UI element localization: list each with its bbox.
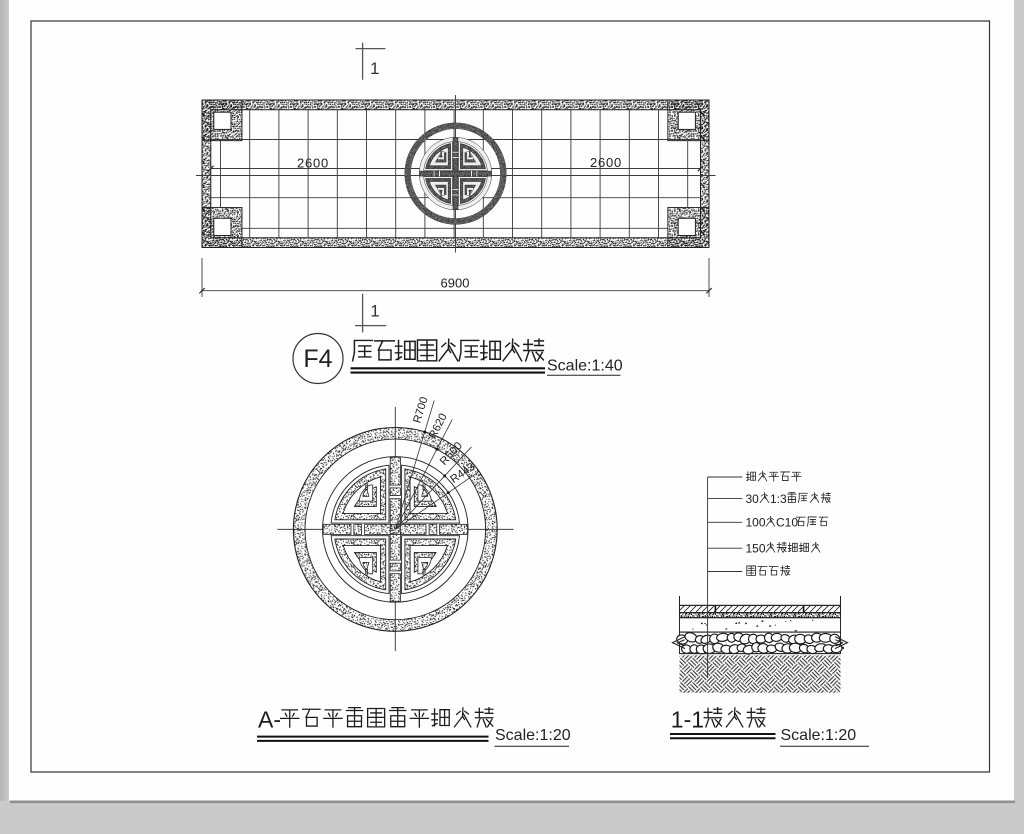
svg-text:30: 30 xyxy=(746,492,760,506)
svg-text:F4: F4 xyxy=(303,345,332,373)
svg-text:Scale:1:20: Scale:1:20 xyxy=(781,727,857,744)
svg-text:100: 100 xyxy=(746,516,766,530)
svg-text:1-1: 1-1 xyxy=(671,707,704,733)
svg-text:1: 1 xyxy=(370,59,379,78)
svg-text:2600: 2600 xyxy=(590,155,622,170)
svg-text:6900: 6900 xyxy=(441,276,470,291)
svg-text:1:3: 1:3 xyxy=(770,492,787,506)
svg-text:C10: C10 xyxy=(776,516,798,530)
svg-text:1: 1 xyxy=(370,302,379,321)
svg-text:150: 150 xyxy=(746,541,766,555)
svg-text:2600: 2600 xyxy=(297,156,329,171)
svg-text:Scale:1:40: Scale:1:40 xyxy=(547,358,623,375)
svg-text:A-: A- xyxy=(258,707,281,733)
svg-text:Scale:1:20: Scale:1:20 xyxy=(495,727,571,744)
